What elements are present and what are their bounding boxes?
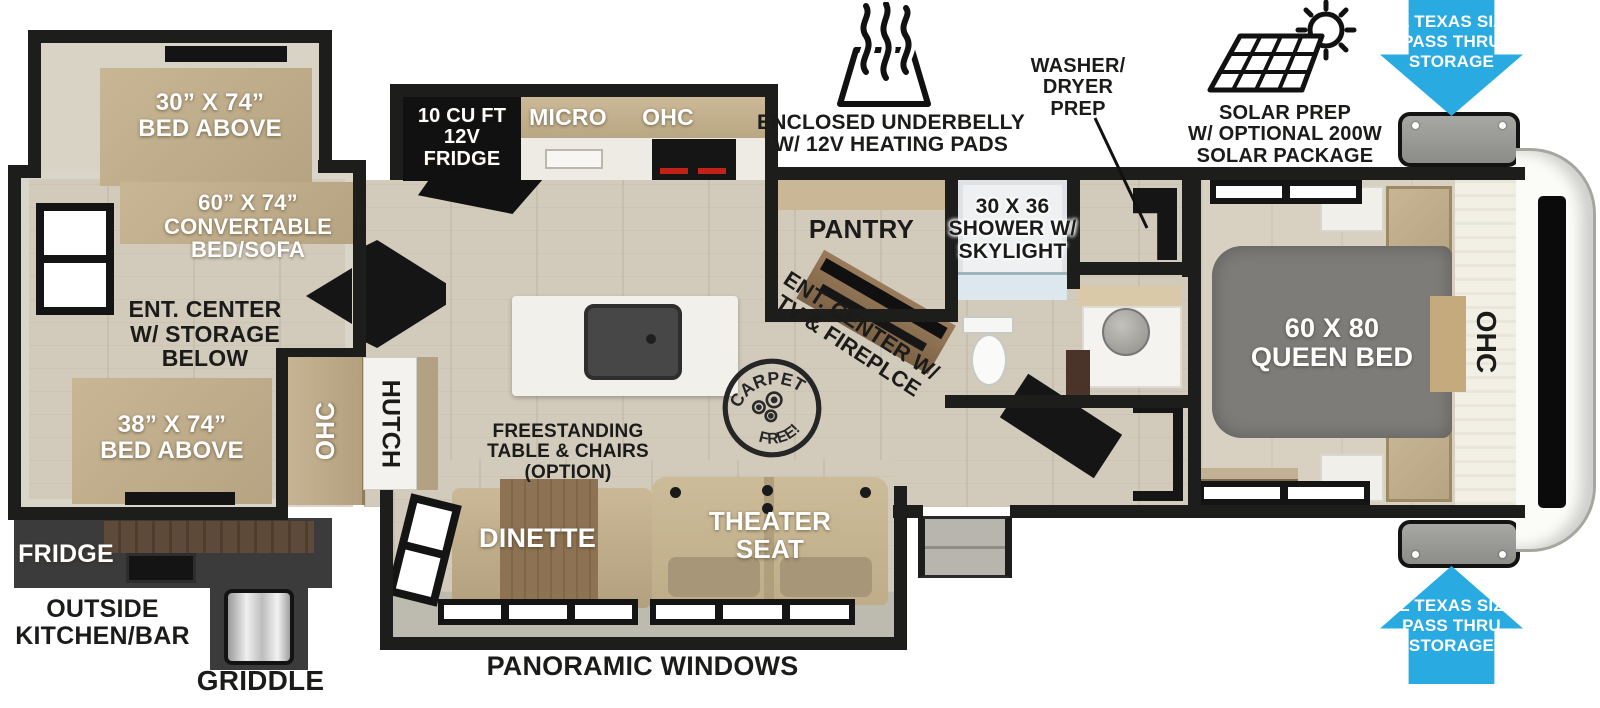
bunk-bed-38-label: 38” X 74” BED ABOVE	[72, 412, 272, 463]
pass-thru-door	[1398, 112, 1520, 167]
wall	[893, 505, 923, 518]
entry-steps	[918, 516, 1012, 578]
cupholder	[670, 487, 681, 498]
island-sink	[584, 304, 682, 380]
window-pane	[1288, 487, 1364, 499]
cooktop-burner	[698, 168, 726, 174]
pantry-label: PANTRY	[778, 216, 945, 244]
bunk-bed-38-shelf	[125, 492, 235, 505]
outside-kitchen-appliance	[126, 553, 196, 583]
wall	[28, 30, 332, 43]
pass-thru-bottom-label: XL TEXAS SIZE PASS THRU STORAGE	[1380, 566, 1523, 656]
pass-thru-arrow-bottom: XL TEXAS SIZE PASS THRU STORAGE	[1380, 566, 1523, 684]
window-pane	[1216, 186, 1282, 198]
wall	[28, 30, 41, 178]
window-pane	[723, 605, 782, 619]
cupholder	[762, 485, 773, 496]
wall	[1080, 262, 1195, 275]
bath-sink	[1102, 308, 1150, 356]
wall	[945, 395, 1201, 408]
bath-vanity-counter	[1078, 286, 1182, 308]
panoramic-windows-label: PANORAMIC WINDOWS	[440, 652, 845, 681]
screw	[1499, 122, 1506, 129]
fridge-12v-label: 10 CU FT 12V FRIDGE	[403, 106, 521, 170]
cooktop-burner	[660, 168, 688, 174]
solar-prep-label: SOLAR PREP W/ OPTIONAL 200W SOLAR PACKAG…	[1180, 103, 1390, 167]
wall	[380, 637, 907, 650]
closet	[1133, 403, 1183, 501]
headboard	[1430, 296, 1466, 392]
toilet	[962, 316, 1014, 334]
cupholder	[860, 487, 871, 498]
screw	[1499, 551, 1506, 558]
wall	[1010, 505, 1525, 518]
window-pane	[1290, 186, 1356, 198]
wall	[319, 30, 332, 173]
window-pane	[444, 605, 501, 619]
window-pane	[396, 550, 441, 598]
enclosed-underbelly-label: ENCLOSED UNDERBELLY W/ 12V HEATING PADS	[752, 112, 1030, 157]
outside-kitchen-counter	[104, 521, 314, 553]
window-pane	[790, 605, 849, 619]
window	[1198, 481, 1370, 505]
dinette-label: DINETTE	[420, 524, 655, 553]
window	[650, 599, 855, 625]
window-pane	[656, 605, 715, 619]
wall	[390, 84, 778, 97]
screw	[1412, 122, 1419, 129]
stamp-gear-icons	[751, 391, 787, 425]
kitchen-sink	[545, 149, 603, 169]
queen-bed-label: 60 X 80 QUEEN BED	[1232, 314, 1432, 372]
shower-label: 30 X 36 SHOWER W/ SKYLIGHT	[935, 196, 1090, 263]
front-cap-window	[1538, 196, 1566, 508]
pass-thru-top-label: XL TEXAS SIZE PASS THRU STORAGE	[1380, 0, 1523, 72]
theater-seat-label: THEATER SEAT	[655, 508, 885, 564]
window	[1210, 180, 1362, 204]
hutch-label: HUTCH	[377, 380, 404, 469]
wall	[390, 84, 403, 180]
pantry-shelf	[778, 180, 945, 210]
wall	[8, 507, 288, 520]
bedroom-ohc-label: OHC	[1471, 311, 1501, 374]
solar-panel-icon	[1198, 0, 1363, 102]
wall	[8, 165, 21, 520]
wall	[380, 486, 393, 650]
island-faucet	[646, 334, 656, 344]
heating-pads-icon	[818, 2, 950, 110]
ohc-left-label: OHC	[312, 402, 340, 460]
kitchen-ohc-label: OHC	[616, 105, 720, 130]
toilet-bowl	[971, 334, 1007, 386]
wall	[1188, 167, 1201, 518]
window-pane	[1204, 487, 1280, 499]
step-edge	[925, 546, 1005, 549]
bunk-bed-30-label: 30” X 74” BED ABOVE	[110, 90, 310, 141]
griddle-label: GRIDDLE	[168, 666, 353, 696]
pass-thru-arrow-top: XL TEXAS SIZE PASS THRU STORAGE	[1380, 0, 1523, 116]
ent-center-storage-label: ENT. CENTER W/ STORAGE BELOW	[85, 297, 325, 371]
rv-floorplan: 30” X 74” BED ABOVE 60” X 74” CONVERTABL…	[0, 0, 1600, 708]
griddle	[224, 589, 294, 665]
window-pane	[44, 211, 106, 255]
window-pane	[575, 605, 632, 619]
washer-dryer-label: WASHER/ DRYER PREP	[1008, 56, 1148, 120]
bunk-bed-30-shelf	[165, 46, 287, 62]
wall	[276, 357, 288, 507]
window-pane	[509, 605, 566, 619]
outside-fridge-label: FRIDGE	[16, 541, 116, 568]
hutch-side	[416, 357, 438, 490]
outside-kitchen-label: OUTSIDE KITCHEN/BAR	[0, 596, 205, 650]
screw	[1412, 551, 1419, 558]
bath-door	[1066, 350, 1090, 396]
freestanding-table-label: FREESTANDING TABLE & CHAIRS (OPTION)	[468, 422, 668, 483]
convertible-bed-label: 60” X 74” CONVERTABLE BED/SOFA	[133, 191, 363, 262]
shower-pan	[958, 272, 1067, 300]
pass-thru-door	[1398, 520, 1520, 568]
micro-label: MICRO	[516, 105, 620, 130]
washer-dryer-leader-line	[1085, 116, 1160, 234]
window	[438, 599, 638, 625]
